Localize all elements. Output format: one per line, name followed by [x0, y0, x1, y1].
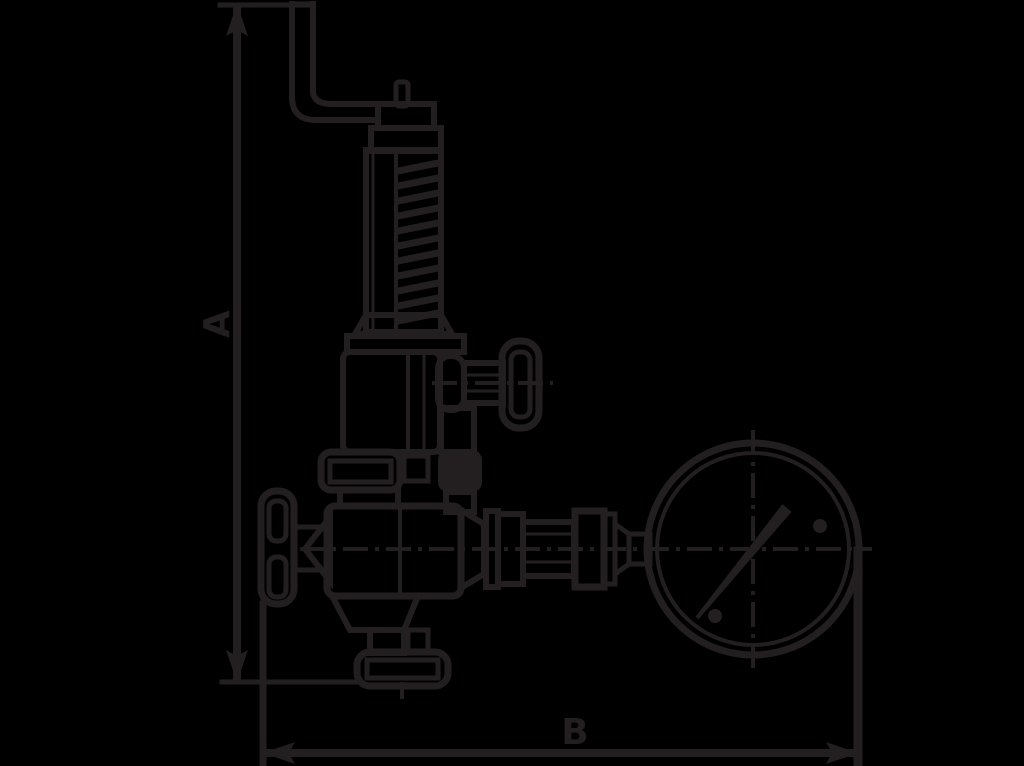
bottom-flange-slot: [367, 660, 438, 678]
column-base-flare: [355, 315, 452, 334]
label-b: B: [561, 712, 588, 753]
bottom-flange: [357, 652, 448, 686]
gauge-screw-dot-upper: [813, 519, 827, 533]
downpipe-upper: [441, 408, 474, 452]
flange-slot: [330, 461, 391, 482]
inlet-handwheel: [261, 491, 294, 604]
flange-side-block: [404, 456, 428, 481]
drawing-canvas: A B: [0, 0, 1024, 766]
easing-lever: [292, 4, 374, 120]
label-a: A: [197, 310, 238, 338]
dimension-b: B: [263, 551, 858, 764]
gauge-downpipe: [438, 408, 482, 512]
valve-body: [293, 490, 461, 596]
spring-coils: [398, 163, 438, 321]
inlet-handwheel-rim: [261, 491, 294, 604]
spring-housing-cap: [371, 104, 441, 151]
bonnet: [343, 352, 440, 452]
upper-flange: [321, 452, 428, 490]
test-valve: [432, 341, 553, 428]
spring-column: [347, 150, 464, 352]
inlet-handwheel-slot-top: [269, 501, 286, 541]
valve-technical-drawing: A B: [0, 0, 1024, 766]
downpipe-elbow: [438, 450, 482, 492]
gauge-screw-dot-lower: [708, 609, 722, 623]
lever-inner-edge: [313, 4, 374, 104]
gauge-needle: [696, 504, 792, 619]
outlet-taper: [332, 596, 418, 630]
inlet-handwheel-slot-bottom: [269, 557, 286, 597]
